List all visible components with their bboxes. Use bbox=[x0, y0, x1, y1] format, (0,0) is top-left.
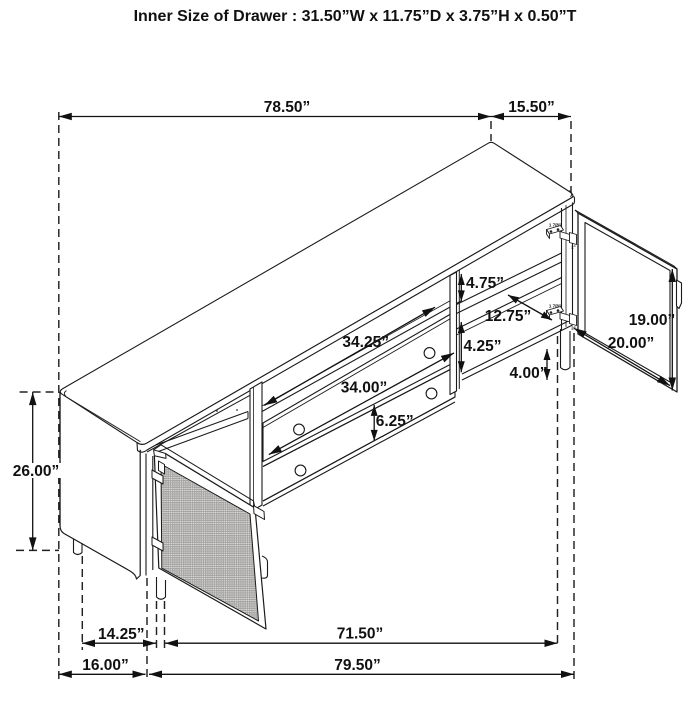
svg-text:26.00”: 26.00” bbox=[13, 463, 60, 480]
svg-text:15.50”: 15.50” bbox=[508, 99, 555, 116]
svg-text:71.50”: 71.50” bbox=[337, 626, 384, 643]
svg-text:2”: 2” bbox=[571, 326, 575, 331]
svg-text:20.00”: 20.00” bbox=[608, 335, 655, 352]
svg-text:34.25”: 34.25” bbox=[342, 334, 389, 351]
svg-text:78.50”: 78.50” bbox=[264, 99, 311, 116]
svg-text:12.75”: 12.75” bbox=[485, 308, 532, 325]
svg-text:4.00”: 4.00” bbox=[510, 365, 548, 382]
svg-text:1 7/8”: 1 7/8” bbox=[549, 223, 561, 228]
svg-text:19.00”: 19.00” bbox=[629, 312, 676, 329]
svg-text:4.75”: 4.75” bbox=[466, 275, 504, 292]
svg-text:16.00”: 16.00” bbox=[82, 657, 129, 674]
svg-text:14.25”: 14.25” bbox=[98, 626, 145, 643]
svg-text:2”: 2” bbox=[571, 245, 575, 250]
svg-text:1 7/8”: 1 7/8” bbox=[549, 304, 561, 309]
svg-text:6.25”: 6.25” bbox=[376, 413, 414, 430]
svg-text:34.00”: 34.00” bbox=[341, 380, 388, 397]
svg-text:79.50”: 79.50” bbox=[334, 657, 381, 674]
svg-text:4.25”: 4.25” bbox=[464, 338, 502, 355]
